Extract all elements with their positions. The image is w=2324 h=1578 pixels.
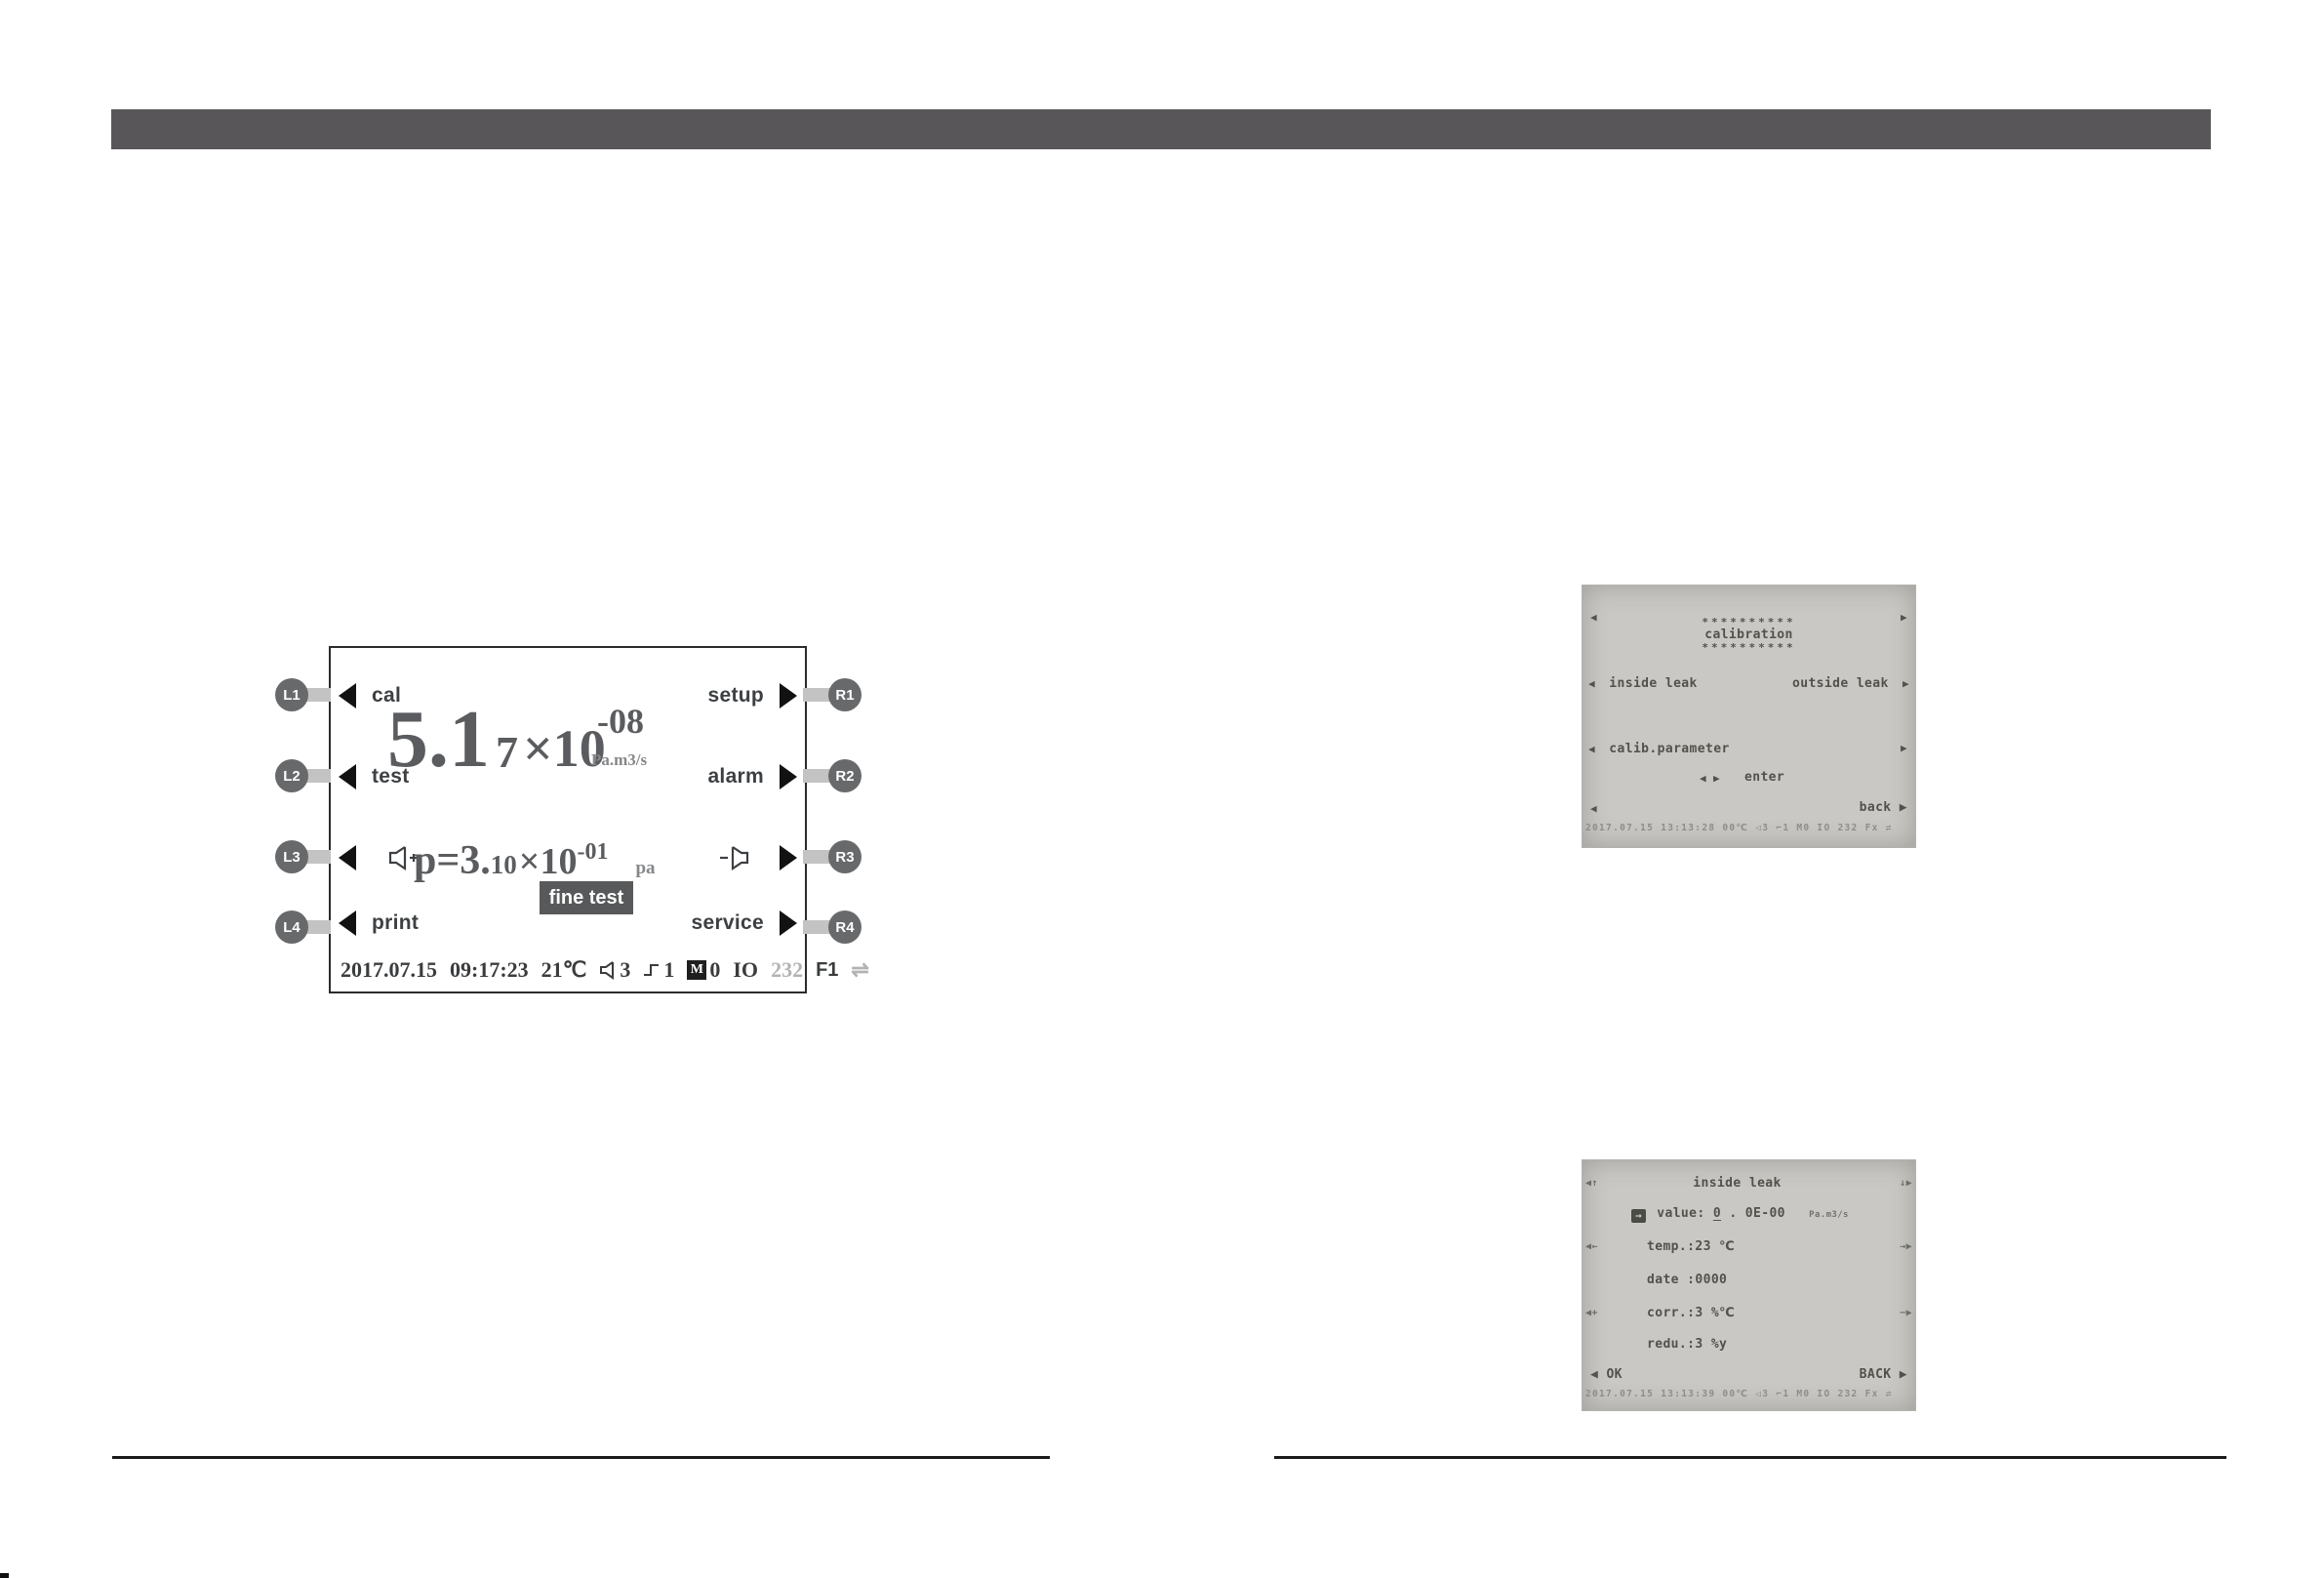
lcd-nav-plus: ◀+ (1585, 1308, 1598, 1318)
hardware-button-R1: R1 (828, 678, 861, 711)
softkey-row-alarm: alarm (707, 764, 797, 789)
lcd-value-rest: . 0E-00 (1729, 1206, 1785, 1221)
serial-link-icon: ⇌ (851, 957, 868, 983)
mode-badge: fine test (540, 881, 633, 914)
lcd-item-inside-leak: ◀ inside leak (1588, 676, 1698, 691)
right-arrow-icon (780, 845, 797, 870)
lcd-outside-leak-label: outside leak (1792, 676, 1889, 691)
volume-down-icon (717, 845, 750, 870)
right-arrow-icon: ▶ (1901, 742, 1907, 754)
right-arrow-icon (780, 764, 797, 789)
left-arrow-icon (339, 845, 356, 870)
device-screen: cal test print setup (329, 646, 807, 993)
lcd-corr-label: corr.:3 %℃ (1647, 1306, 1735, 1320)
softkey-label-service: service (691, 911, 764, 935)
right-arrow-icon (780, 910, 797, 936)
status-date: 2017.07.15 (341, 957, 437, 983)
hardware-button-R2: R2 (828, 759, 861, 792)
cursor-arrow-icon: → (1631, 1209, 1646, 1223)
right-arrow-icon (780, 683, 797, 708)
hardware-button-R4: R4 (828, 910, 861, 944)
lcd-calib-parameter-label: calib.parameter (1609, 742, 1729, 756)
pressure-prefix: p=3. (414, 837, 491, 884)
softkey-row-service: service (691, 910, 797, 936)
status-serial: 232 (771, 957, 803, 983)
status-temperature: 21℃ (541, 957, 587, 983)
lcd-value-row: → value: 0 . 0E-00 Pa.m3/s (1631, 1206, 1849, 1223)
leak-rate-reading: 5.1 7 ×10 -08 Pa.m3/s (387, 708, 719, 773)
status-io: IO (733, 957, 758, 983)
right-arrow-icon: ▶ (1903, 677, 1909, 690)
speaker-icon (599, 960, 617, 980)
lcd-back-label: back ▶ (1860, 800, 1907, 815)
status-memory-value: 0 (709, 957, 720, 983)
left-arrow-icon: ◀ (1588, 677, 1595, 690)
lcd-photo-calibration: ◀ ▶ ********** calibration ********** ◀ … (1582, 585, 1916, 848)
pressure-unit: pa (635, 858, 655, 879)
lcd-enter-label: enter (1744, 770, 1784, 785)
leak-rate-mantissa: 5.1 (387, 712, 490, 767)
lcd-temp-label: temp.:23 ℃ (1647, 1239, 1735, 1254)
pressure-times: ×10 (519, 840, 578, 883)
hardware-button-L3: L3 (275, 840, 308, 873)
pressure-reading: p=3. 10 ×10 -01 pa (414, 837, 656, 884)
left-arrow-icon (339, 910, 356, 936)
lcd-redu-label: redu.:3 %y (1647, 1337, 1727, 1352)
hardware-button-L1: L1 (275, 678, 308, 711)
left-arrow-icon (339, 683, 356, 708)
footer-rule-left (112, 1456, 1050, 1459)
left-arrow-icon: ◀ (1590, 802, 1597, 815)
corner-print-mark (0, 1573, 9, 1578)
softkey-label-setup: setup (707, 684, 764, 708)
leak-rate-unit: Pa.m3/s (591, 753, 647, 767)
pressure-exponent: -01 (577, 839, 608, 866)
left-arrow-icon: ◀ (1588, 743, 1595, 755)
hardware-button-L2: L2 (275, 759, 308, 792)
lcd-title-inside-leak: inside leak (1571, 1176, 1903, 1191)
pulse-icon (643, 961, 661, 979)
hardware-button-R3: R3 (828, 840, 861, 873)
lcd-value-label: value: (1657, 1206, 1704, 1221)
lcd-date-label: date :0000 (1647, 1273, 1727, 1287)
pressure-digit: 10 (491, 850, 517, 880)
status-time: 09:17:23 (450, 957, 529, 983)
lcd-enter-arrows: ◀ ▶ (1700, 772, 1720, 785)
status-pulse: 1 (643, 957, 674, 983)
lcd-title-calibration: calibration (1583, 627, 1915, 642)
lcd-nav-minus: −▶ (1900, 1308, 1912, 1318)
status-function: F1 (816, 959, 838, 982)
lcd-ok-label: ◀ OK (1590, 1367, 1623, 1382)
screen-status-bar: 2017.07.15 09:17:23 21℃ 3 1 M (341, 957, 869, 983)
lcd-nav-down-right: ↓▶ (1900, 1178, 1912, 1189)
memory-icon: M (687, 960, 706, 980)
status-volume: 3 (599, 957, 630, 983)
status-memory: M 0 (687, 957, 720, 983)
leak-rate-digit: 7 (496, 736, 518, 768)
lcd-stars-bottom: ********** (1583, 641, 1915, 654)
softkey-label-print: print (372, 911, 419, 935)
footer-rule-right (1274, 1456, 2226, 1459)
left-arrow-icon (339, 764, 356, 789)
lcd-value-cursor-digit: 0 (1713, 1206, 1721, 1221)
page-header-bar (111, 109, 2211, 149)
status-volume-level: 3 (620, 957, 630, 983)
lcd-nav-left-back: ◀← (1585, 1241, 1598, 1252)
softkey-row-volume-down (717, 845, 797, 870)
softkey-row-setup: setup (707, 683, 797, 708)
status-pulse-level: 1 (663, 957, 674, 983)
lcd-value-unit: Pa.m3/s (1809, 1210, 1849, 1220)
lcd-back-label: BACK ▶ (1860, 1367, 1907, 1382)
lcd-inside-leak-label: inside leak (1609, 676, 1698, 691)
hardware-button-L4: L4 (275, 910, 308, 944)
softkey-row-print: print (339, 910, 419, 936)
lcd-photo-inside-leak: ◀↑ inside leak ↓▶ → value: 0 . 0E-00 Pa.… (1582, 1159, 1916, 1411)
lcd-item-calib-parameter: ◀ calib.parameter (1588, 742, 1730, 756)
manual-page: L1 L2 L3 L4 R1 R2 R3 R4 cal test (0, 0, 2324, 1578)
lcd-item-outside-leak: outside leak ▶ (1792, 676, 1909, 691)
lcd-status-line: 2017.07.15 13:13:28 00℃ ◁3 ⌐1 M0 IO 232 … (1585, 823, 1893, 833)
lcd-status-line: 2017.07.15 13:13:39 00℃ ◁3 ⌐1 M0 IO 232 … (1585, 1389, 1893, 1399)
lcd-nav-right-forward: →▶ (1900, 1241, 1912, 1252)
leak-rate-exponent: -08 (597, 708, 644, 735)
softkey-row-volume-up (339, 845, 421, 870)
